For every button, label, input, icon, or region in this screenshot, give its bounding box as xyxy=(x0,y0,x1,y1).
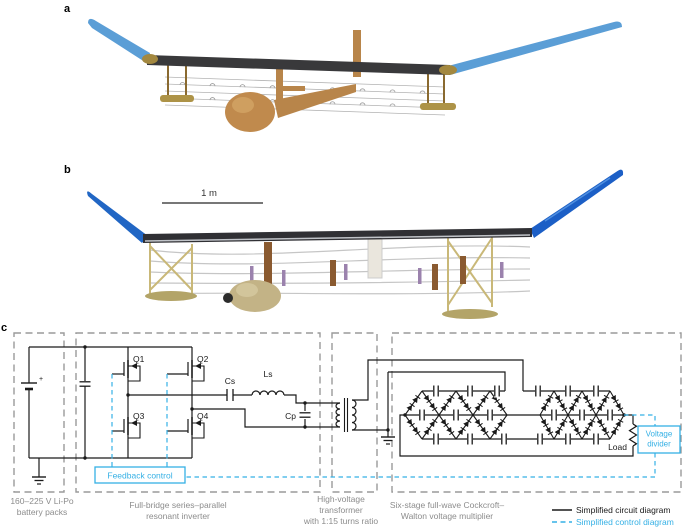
voltage-divider-label-1: Voltage xyxy=(646,430,673,439)
q2-label: Q2 xyxy=(197,354,209,364)
transformer-box xyxy=(332,333,377,492)
right-wingtip-photo xyxy=(530,170,623,238)
q3-label: Q3 xyxy=(133,411,145,421)
multiplier-box xyxy=(392,333,681,492)
caption-inverter: Full-bridge series–parallel resonant inv… xyxy=(93,500,263,522)
voltage-divider-label-2: divider xyxy=(647,440,671,449)
left-skid-photo xyxy=(145,291,197,301)
legend-circuit-label: Simplified circuit diagram xyxy=(576,505,670,515)
q1-label: Q1 xyxy=(133,354,145,364)
ls-label: Ls xyxy=(264,369,273,379)
fuselage-bulb-photo xyxy=(229,280,281,312)
center-pylon xyxy=(276,66,283,102)
load-label: Load xyxy=(608,442,627,452)
propeller-spinner xyxy=(223,293,233,303)
electrode-wires-photo xyxy=(150,246,530,294)
scale-bar-label: 1 m xyxy=(201,188,217,199)
q4-label: Q4 xyxy=(197,411,209,421)
wingtip-highlight xyxy=(545,178,610,221)
right-fairing xyxy=(439,65,457,75)
caption-multiplier: Six-stage full-wave Cockcroft– Walton vo… xyxy=(347,500,547,522)
right-skid-photo xyxy=(442,309,498,319)
left-wingtip-photo xyxy=(87,191,148,243)
caption-battery: 160–225 V Li-Po battery packs xyxy=(0,496,84,518)
fuselage-highlight xyxy=(232,97,254,113)
right-skid xyxy=(420,103,456,110)
fuselage-bulb xyxy=(225,92,275,132)
legend-control-label: Simplified control diagram xyxy=(576,517,674,527)
feedback-control-label: Feedback control xyxy=(107,471,172,481)
circuit-wires xyxy=(21,345,637,484)
left-wingtip xyxy=(88,19,150,64)
cs-label: Cs xyxy=(225,376,235,386)
right-wingtip xyxy=(448,22,622,75)
cp-label: Cp xyxy=(285,411,296,421)
left-fairing xyxy=(142,54,158,64)
left-skid xyxy=(160,95,194,102)
figure-ion-plane: a b c 1 m xyxy=(0,0,685,531)
main-wing xyxy=(147,55,450,75)
battery-plus-label: + xyxy=(39,376,43,383)
panel-b-photo: 1 m xyxy=(0,166,685,322)
fuselage-highlight-photo xyxy=(236,283,258,297)
panel-a-render xyxy=(0,0,685,162)
pylon-arm xyxy=(283,86,305,91)
